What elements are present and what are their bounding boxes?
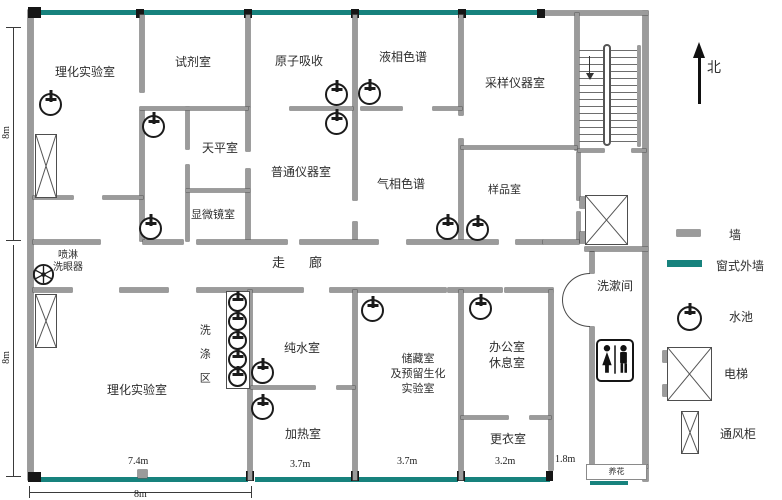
room-label-gas-chromatography: 气相色谱 [377,177,425,193]
dimension-lab-bottom-width: 7.4m [128,456,148,467]
wall [585,247,648,251]
wall [246,107,250,151]
wall [549,290,553,470]
dimension-heating-width: 3.7m [290,459,310,470]
room-label-atomic-absorption: 原子吸收 [275,54,323,70]
room-label-washroom: 洗漱间 [597,279,633,295]
wall [186,189,250,192]
wall [246,169,250,241]
north-label: 北 [707,60,721,78]
wall [543,240,579,244]
wall [300,240,378,244]
elevator-door-stub [580,232,585,243]
room-label-reagent: 试剂室 [175,55,211,71]
sink-icon [228,368,247,387]
legend-elevator-door-stub [663,385,667,396]
wall [33,240,100,244]
sink-icon [358,82,381,105]
wall [140,15,144,92]
north-arrow-line [698,56,701,104]
storage-label-line1: 储藏室 [368,352,468,367]
wall [197,240,287,244]
restroom-sign [596,339,634,382]
elevator-door-stub [580,197,585,208]
wall [643,11,648,481]
room-label-lab-top: 理化实验室 [55,65,115,81]
sink-icon [39,93,62,116]
dimension-tick [29,486,30,498]
door-arc [562,300,590,327]
wall [505,288,553,292]
window-wall [464,477,550,482]
column [28,472,41,482]
eyewash-label-line1: 喷淋 [45,250,91,262]
dimension-tick [6,240,21,241]
room-label-changing: 更衣室 [490,432,526,448]
legend-wall-label: 墙 [729,228,741,244]
wall [330,288,446,292]
room-label-lab-bottom: 理化实验室 [107,383,167,399]
dimension-tick [251,486,252,498]
eyewash-label: 喷淋 洗眼器 [45,250,91,274]
dimension-tick [6,476,21,477]
room-label-office: 办公室 休息室 [477,339,537,371]
sink-icon [436,217,459,240]
wall [516,240,543,244]
office-label-line2: 休息室 [477,355,537,371]
legend-window-wall-swatch [667,260,702,267]
floor-plan: 喷淋 洗眼器 养花 理化实验室 试剂室 原子吸收 液相色谱 采样仪器室 天平室 … [0,0,782,500]
dimension-changing-width: 3.2m [495,456,515,467]
dimension-exit-width: 1.8m [555,454,575,465]
legend-fume-hood-icon [681,411,699,454]
wall [143,240,183,244]
dimension-line [13,28,14,241]
room-label-washing-area: 洗涤区 [197,324,211,396]
sink-icon [251,397,274,420]
eyewash-label-line2: 洗眼器 [45,262,91,274]
legend-fume-hood-label: 通风柜 [720,427,756,443]
wall [246,15,250,107]
dimension-line [13,245,14,477]
wall [638,46,640,146]
wall [540,11,648,15]
flower-box: 养花 [586,464,647,480]
room-label-general-instrument: 普通仪器室 [271,165,331,181]
sink-icon [466,218,489,241]
sink-icon [361,299,384,322]
wall [337,386,355,389]
room-label-storage: 储藏室 及预留生化 实验室 [368,352,468,397]
storage-label-line2: 及预留生化 [368,367,468,382]
window-wall [33,10,543,15]
door-arc [562,273,590,300]
legend-window-wall-label: 窗式外墙 [716,259,764,275]
wall [459,139,463,241]
wall [103,196,143,199]
wall [578,149,604,152]
room-label-heating: 加热室 [285,427,321,443]
room-label-liquid-chromatography: 液相色谱 [379,50,427,66]
room-label-pure-water: 纯水室 [284,341,320,357]
wall [530,416,551,419]
column [537,9,545,18]
column [546,471,553,481]
sink-icon [325,112,348,135]
wall [361,107,402,110]
room-label-microscope: 显微镜室 [191,208,235,222]
stair-direction-arrow [586,73,594,80]
dimension-bottom: 8m [134,489,147,500]
wall [459,15,463,115]
dimension-left-bottom: 8m [1,351,12,364]
door-stub [138,470,147,478]
room-label-sampling-instrument: 采样仪器室 [485,76,545,92]
legend-elevator-label: 电梯 [724,367,748,383]
wall [251,386,315,389]
room-label-corridor: 走廊 [272,255,346,272]
dimension-storage-width: 3.7m [397,456,417,467]
wall [353,222,357,241]
sink-icon [469,297,492,320]
legend-elevator-icon [667,347,712,401]
wall [290,107,353,110]
room-label-balance: 天平室 [202,141,238,157]
dimension-left-top: 8m [1,126,12,139]
wall [632,149,646,152]
sink-icon [142,115,165,138]
wall [186,107,189,149]
wall [407,240,498,244]
room-label-sample: 样品室 [488,183,521,197]
legend-elevator-door-stub [663,351,667,362]
wall [353,15,357,200]
wall [590,252,594,273]
flower-label: 养花 [587,465,646,479]
sink-icon [251,361,274,384]
office-label-line1: 办公室 [477,339,537,355]
dimension-tick [6,27,21,28]
elevator [585,195,628,245]
wall [590,327,594,469]
wall [186,165,189,241]
wall [33,288,72,292]
fume-hood [35,134,57,198]
legend-sink-icon [677,306,702,331]
wall [461,416,508,419]
wall [28,10,33,480]
wall [461,146,577,149]
wall [448,288,502,292]
column [28,7,41,18]
wall [353,290,357,480]
storage-label-line3: 实验室 [368,382,468,397]
fume-hood [35,294,57,348]
legend-sink-label: 水池 [729,310,753,326]
wall [120,288,168,292]
stair-direction-line [589,56,590,74]
stair-rail [603,44,611,146]
window-wall [590,481,628,485]
wall [577,152,580,200]
legend-wall-swatch [677,230,700,236]
wall [433,107,462,110]
sink-icon [325,83,348,106]
wall [140,107,248,110]
sink-icon [139,217,162,240]
